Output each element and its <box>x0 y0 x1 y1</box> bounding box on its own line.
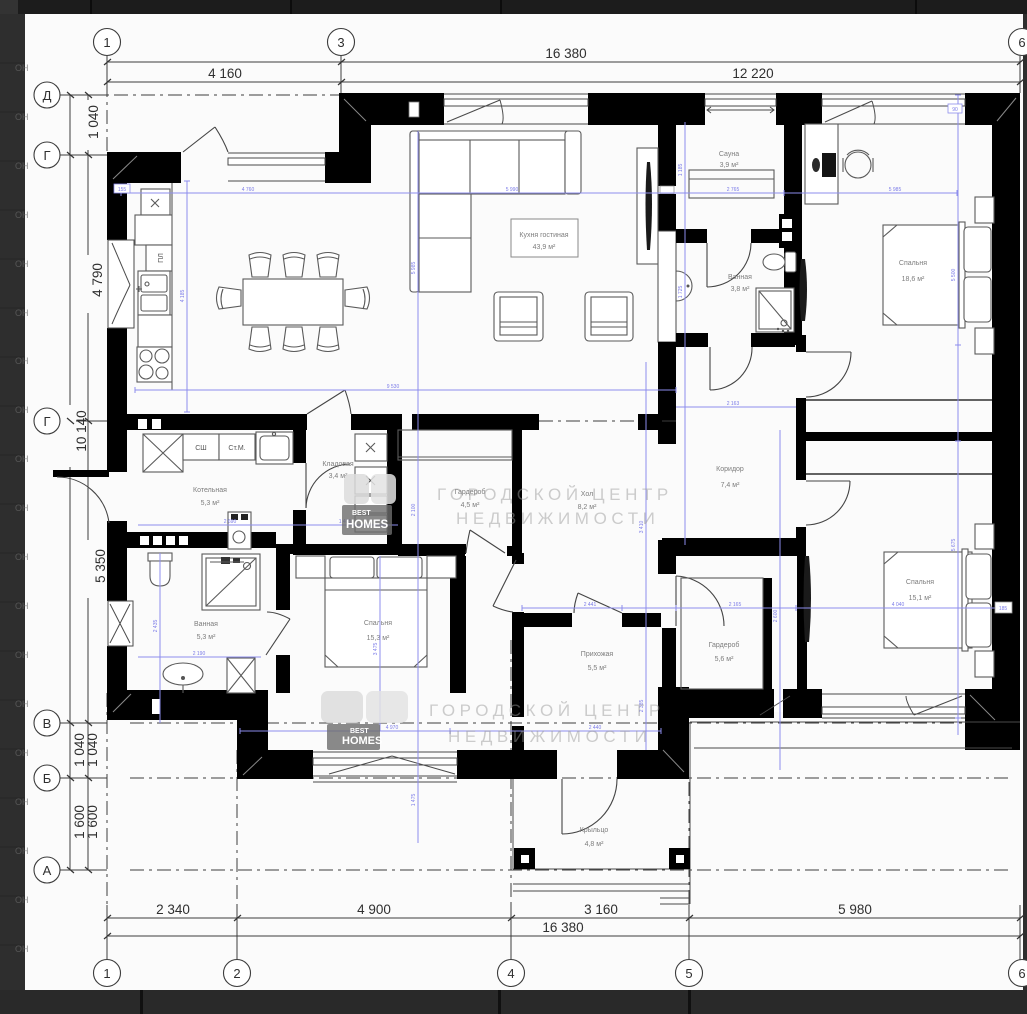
svg-text:ОН: ОН <box>15 210 29 220</box>
svg-text:2 340: 2 340 <box>156 902 190 917</box>
svg-text:BEST: BEST <box>350 728 369 735</box>
svg-text:А: А <box>43 863 52 878</box>
svg-text:ОН: ОН <box>15 846 29 856</box>
svg-text:ОН: ОН <box>15 503 29 513</box>
svg-text:Спальня: Спальня <box>364 620 392 627</box>
svg-text:ОН: ОН <box>15 405 29 415</box>
svg-text:3: 3 <box>337 35 344 50</box>
svg-text:Ванная: Ванная <box>194 621 218 628</box>
svg-text:ПЛ: ПЛ <box>158 253 165 263</box>
svg-text:HOMES: HOMES <box>346 519 389 531</box>
svg-text:ОН: ОН <box>15 454 29 464</box>
svg-text:СШ: СШ <box>195 445 206 452</box>
svg-text:16 380: 16 380 <box>545 46 586 61</box>
svg-text:2 441: 2 441 <box>584 602 597 608</box>
svg-text:2 163: 2 163 <box>727 401 740 407</box>
svg-text:ОН: ОН <box>15 944 29 954</box>
svg-text:Прихожая: Прихожая <box>581 651 614 658</box>
svg-text:7,4 м²: 7,4 м² <box>721 482 740 489</box>
svg-text:185: 185 <box>999 606 1008 612</box>
svg-text:НЕДВИЖИМОСТИ: НЕДВИЖИМОСТИ <box>456 509 660 528</box>
svg-text:В: В <box>43 716 52 731</box>
svg-text:НЕДВИЖИМОСТИ: НЕДВИЖИМОСТИ <box>448 727 652 746</box>
svg-text:5 985: 5 985 <box>889 187 902 193</box>
svg-text:1 040: 1 040 <box>86 105 101 139</box>
svg-text:2 435: 2 435 <box>153 620 159 633</box>
svg-text:ОН: ОН <box>15 699 29 709</box>
svg-text:1: 1 <box>103 35 110 50</box>
svg-text:5 985: 5 985 <box>411 262 417 275</box>
svg-text:43,9 м²: 43,9 м² <box>533 244 556 251</box>
svg-text:ОН: ОН <box>15 895 29 905</box>
svg-text:HOMES: HOMES <box>342 735 382 747</box>
svg-text:5,6 м²: 5,6 м² <box>715 656 734 663</box>
svg-text:5 980: 5 980 <box>838 902 872 917</box>
svg-text:Спальня: Спальня <box>906 579 934 586</box>
svg-text:ОН: ОН <box>15 259 29 269</box>
svg-text:ОН: ОН <box>15 161 29 171</box>
svg-text:Гардероб: Гардероб <box>709 641 740 649</box>
svg-text:Крыльцо: Крыльцо <box>580 827 609 834</box>
svg-text:1 600: 1 600 <box>85 805 100 839</box>
svg-text:5,5 м²: 5,5 м² <box>588 665 607 672</box>
svg-text:ОН: ОН <box>15 552 29 562</box>
svg-text:4 790: 4 790 <box>90 263 105 297</box>
svg-text:4 040: 4 040 <box>892 602 905 608</box>
svg-text:5: 5 <box>685 966 692 981</box>
svg-text:Кухня гостиная: Кухня гостиная <box>519 232 568 239</box>
svg-text:Г: Г <box>43 148 50 163</box>
svg-text:ОН: ОН <box>15 797 29 807</box>
svg-text:5 675: 5 675 <box>951 539 957 552</box>
svg-text:6: 6 <box>1018 966 1025 981</box>
svg-text:10 140: 10 140 <box>74 410 89 451</box>
svg-text:Д: Д <box>43 88 52 103</box>
svg-text:18,6 м²: 18,6 м² <box>902 276 925 283</box>
svg-text:2 190: 2 190 <box>193 651 206 657</box>
svg-text:5,3 м²: 5,3 м² <box>201 500 220 507</box>
svg-text:15,3 м²: 15,3 м² <box>367 635 390 642</box>
svg-text:ОН: ОН <box>15 748 29 758</box>
svg-text:90: 90 <box>952 107 958 113</box>
svg-text:5,3 м²: 5,3 м² <box>197 634 216 641</box>
svg-text:4 160: 4 160 <box>208 66 242 81</box>
svg-text:Ванная: Ванная <box>728 274 752 281</box>
svg-text:2 165: 2 165 <box>729 602 742 608</box>
svg-text:ОН: ОН <box>15 356 29 366</box>
svg-text:ОН: ОН <box>15 63 29 73</box>
svg-text:155: 155 <box>118 187 127 193</box>
svg-text:Б: Б <box>43 771 52 786</box>
svg-text:16 380: 16 380 <box>542 920 583 935</box>
svg-text:4 970: 4 970 <box>386 725 399 731</box>
svg-text:1 725: 1 725 <box>678 286 684 299</box>
svg-text:ГОРОДСКОЙ ЦЕНТР: ГОРОДСКОЙ ЦЕНТР <box>429 701 665 720</box>
svg-text:3,9 м²: 3,9 м² <box>720 162 739 169</box>
svg-text:Ст.М.: Ст.М. <box>228 445 245 452</box>
svg-text:ОН: ОН <box>15 650 29 660</box>
svg-text:2 690: 2 690 <box>224 519 237 525</box>
svg-text:5 500: 5 500 <box>951 269 957 282</box>
svg-text:ГОРОДСКОЙ ЦЕНТР: ГОРОДСКОЙ ЦЕНТР <box>437 485 673 504</box>
svg-text:2: 2 <box>233 966 240 981</box>
svg-text:1: 1 <box>103 966 110 981</box>
svg-text:2 600: 2 600 <box>773 610 779 623</box>
svg-text:4 900: 4 900 <box>357 902 391 917</box>
svg-text:9 530: 9 530 <box>387 384 400 390</box>
svg-text:BEST: BEST <box>352 510 371 517</box>
svg-text:1 185: 1 185 <box>678 164 684 177</box>
svg-text:3 160: 3 160 <box>584 902 618 917</box>
svg-text:12 220: 12 220 <box>732 66 773 81</box>
svg-text:6: 6 <box>1018 35 1025 50</box>
svg-text:Спальня: Спальня <box>899 260 927 267</box>
svg-text:Сауна: Сауна <box>719 151 739 158</box>
svg-text:2 100: 2 100 <box>411 504 417 517</box>
svg-text:1 475: 1 475 <box>411 794 417 807</box>
svg-text:Кладовая: Кладовая <box>322 461 354 468</box>
svg-text:3,8 м²: 3,8 м² <box>731 286 750 293</box>
svg-text:ОН: ОН <box>15 112 29 122</box>
svg-text:1 040: 1 040 <box>85 733 100 767</box>
svg-text:5 350: 5 350 <box>93 549 108 583</box>
svg-text:Г: Г <box>43 414 50 429</box>
svg-text:4: 4 <box>507 966 514 981</box>
svg-text:Котельная: Котельная <box>193 487 227 494</box>
svg-text:Коридор: Коридор <box>716 466 744 473</box>
svg-text:15,1 м²: 15,1 м² <box>909 595 932 602</box>
svg-text:ОН: ОН <box>15 601 29 611</box>
svg-text:5 990: 5 990 <box>506 187 519 193</box>
svg-text:4 185: 4 185 <box>180 290 186 303</box>
svg-text:4,8 м²: 4,8 м² <box>585 841 604 848</box>
svg-text:ОН: ОН <box>15 308 29 318</box>
svg-text:4 760: 4 760 <box>242 187 255 193</box>
svg-text:2 765: 2 765 <box>727 187 740 193</box>
svg-text:3 475: 3 475 <box>373 643 379 656</box>
